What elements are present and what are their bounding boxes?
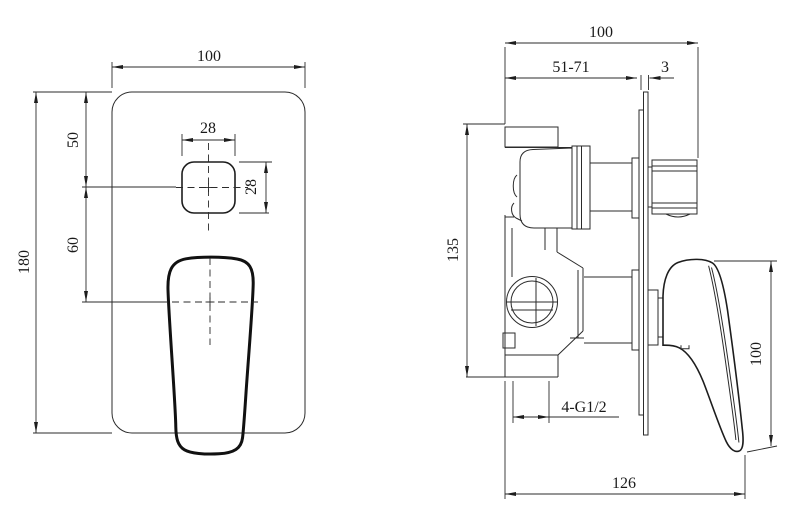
handle-collar	[648, 290, 658, 345]
ext-line	[747, 446, 777, 452]
dim-button-offset: 50	[65, 132, 82, 148]
dim-overall-projection: 126	[612, 475, 636, 492]
side-view: 100 51-71 3 135 100 4-G1/2 126	[445, 24, 777, 499]
front-view: 100 180 50 60 28 28	[16, 48, 305, 454]
body-shoulder	[558, 331, 583, 355]
side-wall-plate	[644, 92, 649, 435]
dim-body-height: 135	[445, 238, 462, 262]
diverter-knob-side	[652, 160, 697, 214]
handle-stem-flange	[632, 270, 639, 350]
dim-front-plate-height: 180	[16, 250, 33, 274]
dim-button-width: 28	[200, 120, 216, 137]
technical-drawing-page: 100 180 50 60 28 28	[0, 0, 800, 524]
dim-button-to-handle: 60	[65, 237, 82, 253]
side-handle	[663, 259, 743, 451]
mixer-drawing-svg: 100 180 50 60 28 28	[0, 0, 800, 524]
dim-front-plate-width: 100	[197, 48, 221, 65]
button-stem-flange	[632, 158, 639, 218]
dim-inlet-thread: 4-G1/2	[561, 399, 606, 416]
dim-overall-depth: 100	[589, 24, 613, 41]
top-port-stub	[505, 127, 558, 147]
dim-button-height: 28	[243, 179, 260, 195]
cartridge-clip-detail	[513, 175, 517, 197]
dim-plate-thickness: 3	[661, 59, 669, 76]
body-shoulder	[557, 252, 583, 268]
cartridge-housing	[520, 148, 572, 228]
dim-handle-height: 100	[748, 342, 765, 366]
side-handle-blade-line	[709, 266, 736, 440]
dim-install-range: 51-71	[552, 59, 589, 76]
side-wall-plate-rim	[639, 110, 644, 415]
front-handle	[168, 257, 253, 454]
side-handle-notch	[681, 345, 689, 349]
